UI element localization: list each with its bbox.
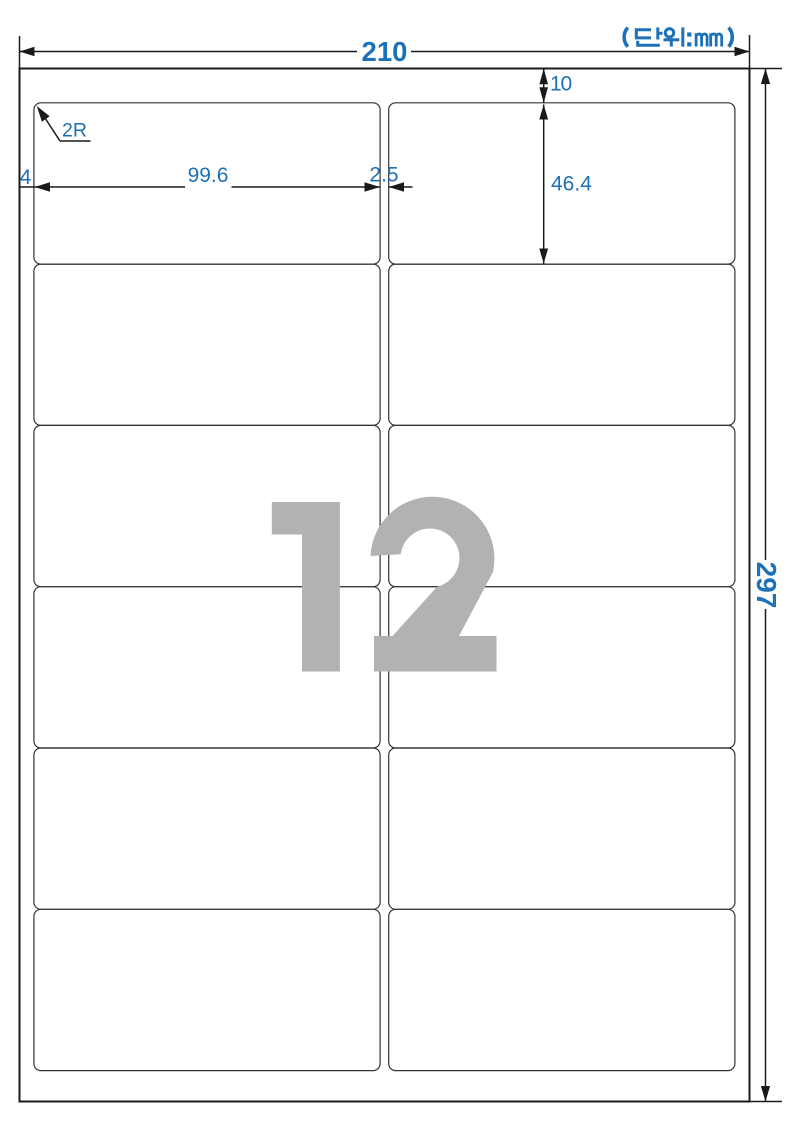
svg-text:10: 10: [550, 73, 571, 96]
svg-text:210: 210: [362, 36, 408, 67]
svg-text:4: 4: [20, 166, 32, 189]
svg-text:2.5: 2.5: [369, 164, 398, 187]
svg-text:2R: 2R: [62, 120, 87, 142]
svg-text:99.6: 99.6: [188, 164, 229, 187]
svg-text:46.4: 46.4: [551, 173, 592, 196]
svg-text:297: 297: [751, 562, 782, 609]
